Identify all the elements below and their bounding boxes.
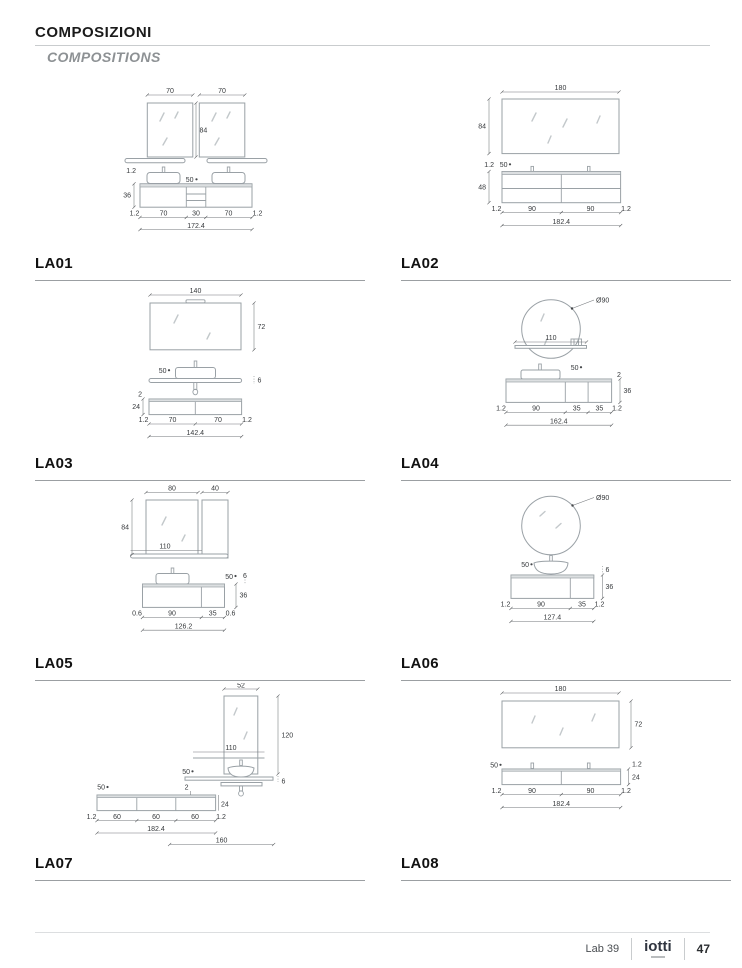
- dim-bottom-0: 1.2: [492, 206, 502, 213]
- dim-bottom-0: 1.2: [492, 788, 502, 795]
- dim-mirror-height: 72: [258, 324, 266, 331]
- dim-bottom-0: 0.6: [132, 611, 142, 618]
- la05-basin: [156, 568, 189, 584]
- dim-bottom-1: 90: [528, 788, 536, 795]
- dim-bottom-1: 90: [168, 611, 176, 618]
- la03-diagram: 140 72 50 6 2 24 1.2 70 70 1.2 142.4: [35, 283, 365, 448]
- dim-mirror-height: 72: [635, 722, 643, 729]
- dim-shelf-width: 110: [545, 335, 556, 342]
- composition-la01: 70 70 84 1.2 36 50 1.2 70 30 70 1.2 172.…: [35, 81, 365, 281]
- dim-bottom-3: 60: [191, 814, 199, 821]
- composition-label: LA01: [35, 255, 365, 272]
- dim-bottom-2: 90: [587, 206, 595, 213]
- collection-name: Lab 39: [585, 943, 619, 955]
- dim-mirror-diameter: Ø90: [596, 495, 609, 502]
- footer-separator: [631, 938, 632, 960]
- dim-bottom-1: 90: [537, 602, 545, 609]
- side-column: [202, 500, 228, 558]
- composition-la03: 140 72 50 6 2 24 1.2 70 70 1.2 142.4 LA0…: [35, 281, 365, 481]
- la08-drawing: 180 72 50 1.2 24 1.2 90 90 1.2 182.4: [401, 683, 731, 851]
- la05-mirror: [146, 500, 228, 558]
- dim-bottom-0: 1.2: [130, 211, 140, 218]
- dim-bottom-2: 35: [573, 406, 581, 413]
- dim-top-lip: 1.2: [484, 162, 494, 169]
- dim-bottom-0: 1.2: [501, 602, 511, 609]
- dim-depth: 50: [225, 574, 233, 581]
- dim-cabinet-height: 24: [132, 404, 140, 411]
- dim-bottom-2: 35: [209, 611, 217, 618]
- dim-total: 182.4: [147, 826, 165, 833]
- page-header: COMPOSIZIONI COMPOSITIONS: [35, 24, 710, 65]
- dim-mirror-height: 84: [121, 525, 129, 532]
- la05-diagram: 80 40 84 110 50 6 36 0.6 90 35 0.6 126.2: [35, 483, 365, 648]
- dim-top-lip: 2: [138, 392, 142, 399]
- la03-cabinet: [149, 399, 242, 415]
- dim-mirror-width: 52: [237, 683, 245, 690]
- la01-drawing: 70 70 84 1.2 36 50 1.2 70 30 70 1.2 172.…: [35, 83, 365, 251]
- dim-bottom-2: 35: [578, 602, 586, 609]
- composition-label: LA02: [401, 255, 731, 272]
- dim-mirror-width: 80: [168, 486, 176, 493]
- dim-bottom-0: 1.2: [87, 814, 97, 821]
- la02-drawing: 180 84 1.2 50 48 1.2 90 90 1.2 182.4: [401, 83, 731, 251]
- dim-bottom-4: 1.2: [612, 406, 622, 413]
- brand-sub-mark: [651, 956, 665, 958]
- dim-depth: 50: [182, 769, 190, 776]
- la08-cabinet: [502, 769, 621, 785]
- catalog-page: COMPOSIZIONI COMPOSITIONS: [0, 0, 742, 968]
- la04-cabinet: [506, 379, 612, 402]
- dim-offset: 160: [216, 838, 228, 845]
- la07-drawing: 52 120 110 50 6 50 2 24 1.2 60 60 60 1.2…: [35, 683, 365, 851]
- la04-drawing: Ø90 110 50 2 36 1.2 90 35 35 1.2 162.4: [401, 283, 731, 451]
- la08-mirror: [502, 701, 619, 748]
- page-number: 47: [697, 942, 710, 956]
- dim-depth: 50: [571, 365, 579, 372]
- la07-cabinet: [97, 795, 216, 811]
- dim-depth: 50: [490, 763, 498, 770]
- la02-diagram: 180 84 1.2 50 48 1.2 90 90 1.2 182.4: [401, 83, 731, 248]
- la06-diagram: Ø90 50 6 36 1.2 90 35 1.2 127.4: [401, 483, 731, 648]
- la03-drawing: 140 72 50 6 2 24 1.2 70 70 1.2 142.4: [35, 283, 365, 451]
- dim-bottom-1: 60: [113, 814, 121, 821]
- la02-cabinet: [502, 172, 621, 203]
- dim-bottom-3: 1.2: [242, 417, 252, 424]
- la04-basin: [521, 364, 560, 379]
- dim-cabinet-height: 36: [606, 584, 614, 591]
- dim-shelf-thickness: 6: [258, 378, 262, 385]
- composition-label: LA03: [35, 455, 365, 472]
- la07-dimensions: 52 120 110 50 6 50 2 24 1.2 60 60 60 1.2…: [87, 683, 294, 846]
- compositions-grid: 70 70 84 1.2 36 50 1.2 70 30 70 1.2 172.…: [35, 81, 710, 881]
- la01-diagram: 70 70 84 1.2 36 50 1.2 70 30 70 1.2 172.…: [35, 83, 365, 248]
- dim-shelf-thickness: 6: [606, 567, 610, 574]
- dim-bottom-3: 0.6: [226, 611, 236, 618]
- dim-shelf-width: 110: [159, 544, 170, 551]
- dim-total: 127.4: [544, 615, 562, 622]
- la03-basin: [149, 361, 242, 395]
- composition-la04: Ø90 110 50 2 36 1.2 90 35 35 1.2 162.4 L…: [401, 281, 731, 481]
- page-footer: Lab 39 iotti 47: [35, 932, 710, 960]
- la05-shelf: [131, 554, 229, 558]
- la02-faucets: [531, 166, 590, 171]
- la01-basins: [147, 167, 245, 184]
- dim-cabinet-height: 36: [123, 193, 131, 200]
- dim-depth: 50: [500, 162, 508, 169]
- dim-bottom-1: 70: [169, 417, 177, 424]
- la06-cabinet: [511, 575, 594, 598]
- header-rule: [35, 45, 710, 46]
- composition-la05: 80 40 84 110 50 6 36 0.6 90 35 0.6 126.2: [35, 481, 365, 681]
- composition-label: LA06: [401, 655, 731, 672]
- dim-bottom-0: 1.2: [496, 406, 506, 413]
- la02-mirror: [502, 99, 619, 154]
- dim-total: 182.4: [553, 219, 571, 226]
- dim-mirror2-width: 70: [218, 88, 226, 95]
- dim-total: 172.4: [187, 223, 205, 230]
- la05-drawing: 80 40 84 110 50 6 36 0.6 90 35 0.6 126.2: [35, 483, 365, 651]
- dim-mirror1-width: 70: [166, 88, 174, 95]
- composition-label: LA07: [35, 855, 365, 872]
- dim-depth: 50: [159, 368, 167, 375]
- la05-cabinet: [143, 584, 225, 607]
- dim-bottom-2: 70: [214, 417, 222, 424]
- composition-la06: Ø90 50 6 36 1.2 90 35 1.2 127.4 LA06: [401, 481, 731, 681]
- dim-cabinet-height: 36: [240, 593, 248, 600]
- dim-total: 142.4: [187, 430, 205, 437]
- dim-bottom-2: 90: [587, 788, 595, 795]
- footer-rule: [35, 932, 710, 933]
- dim-cabinet-height: 36: [624, 388, 632, 395]
- dim-top-lip: 2: [617, 372, 621, 379]
- page-subtitle: COMPOSITIONS: [47, 49, 710, 65]
- dim-bottom-1: 90: [532, 406, 540, 413]
- footer-separator: [684, 938, 685, 960]
- la06-basin: [534, 556, 568, 575]
- dim-mirror-width: 140: [190, 288, 202, 295]
- dim-bottom-0: 1.2: [139, 417, 149, 424]
- dim-total: 126.2: [175, 623, 193, 630]
- composition-la02: 180 84 1.2 50 48 1.2 90 90 1.2 182.4 LA0…: [401, 81, 731, 281]
- dim-bottom-4: 1.2: [253, 211, 263, 218]
- la07-diagram: 52 120 110 50 6 50 2 24 1.2 60 60 60 1.2…: [35, 683, 365, 848]
- dim-bottom-1: 70: [160, 211, 168, 218]
- dim-bottom-1: 90: [528, 206, 536, 213]
- composition-label: LA05: [35, 655, 365, 672]
- la08-faucets: [531, 763, 590, 769]
- dim-mirror-height: 84: [478, 124, 486, 131]
- dim-shelf-thickness: 6: [243, 573, 247, 580]
- dim-mirror-width: 180: [555, 686, 567, 693]
- dim-column-width: 40: [211, 486, 219, 493]
- la01-cabinet: [140, 184, 252, 207]
- composition-la07: 52 120 110 50 6 50 2 24 1.2 60 60 60 1.2…: [35, 681, 365, 881]
- dim-depth: 50: [186, 177, 194, 184]
- la06-drawing: Ø90 50 6 36 1.2 90 35 1.2 127.4: [401, 483, 731, 651]
- page-title: COMPOSIZIONI: [35, 24, 710, 41]
- la08-diagram: 180 72 50 1.2 24 1.2 90 90 1.2 182.4: [401, 683, 731, 848]
- dim-bottom-2: 60: [152, 814, 160, 821]
- composition-label: LA04: [401, 455, 731, 472]
- row-divider: [401, 880, 731, 881]
- dim-bottom-3: 1.2: [621, 788, 631, 795]
- dim-mirror-width: 180: [555, 85, 567, 92]
- dim-depth2: 50: [97, 785, 105, 792]
- la03-mirror: [150, 300, 241, 350]
- dim-mirror-height: 84: [200, 128, 208, 135]
- dim-mirror-height: 120: [282, 733, 294, 740]
- dim-total: 182.4: [553, 801, 571, 808]
- la01-shelves: [125, 159, 267, 163]
- la07-mirror: [224, 696, 258, 774]
- la04-diagram: Ø90 110 50 2 36 1.2 90 35 35 1.2 162.4: [401, 283, 731, 448]
- dim-shelf-thickness: 6: [282, 779, 286, 786]
- dim-bottom-4: 1.2: [216, 814, 226, 821]
- dim-cabinet-height: 24: [221, 802, 229, 809]
- dim-bottom-3: 70: [225, 211, 233, 218]
- dim-bottom-3: 1.2: [621, 206, 631, 213]
- composition-label: LA08: [401, 855, 731, 872]
- composition-la08: 180 72 50 1.2 24 1.2 90 90 1.2 182.4 LA0…: [401, 681, 731, 881]
- mirror-lamp: [186, 300, 205, 303]
- dim-shelf-width: 110: [225, 745, 236, 752]
- brand-logo: iotti: [644, 940, 672, 958]
- dim-cabinet-height: 48: [478, 185, 486, 192]
- dim-top-lip: 1.2: [632, 762, 642, 769]
- dim-bottom-3: 1.2: [595, 602, 605, 609]
- dim-top-lip: 2: [185, 785, 189, 792]
- dim-mirror-diameter: Ø90: [596, 298, 609, 305]
- dim-total: 162.4: [550, 418, 568, 425]
- brand-text: iotti: [644, 938, 672, 955]
- row-divider: [35, 880, 365, 881]
- dim-bottom-3: 35: [596, 406, 604, 413]
- dim-depth: 50: [521, 562, 529, 569]
- dim-cabinet-height: 24: [632, 775, 640, 782]
- dim-top-lip: 1.2: [126, 168, 136, 175]
- dim-bottom-2: 30: [192, 211, 200, 218]
